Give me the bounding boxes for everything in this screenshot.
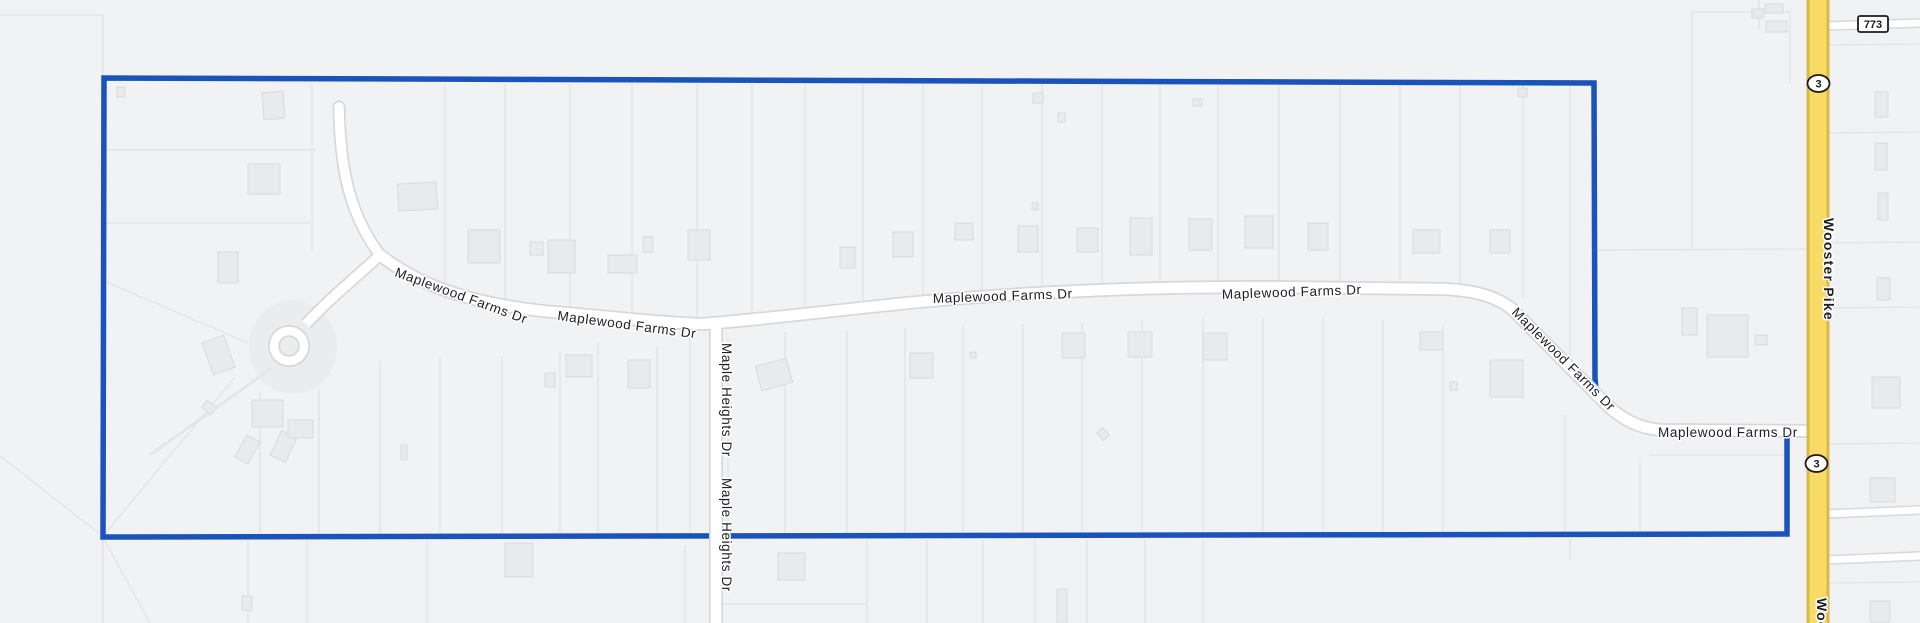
building xyxy=(1707,315,1748,357)
road-label-wooster-pike-1: Wooster Pike xyxy=(1821,218,1837,321)
building xyxy=(1765,4,1783,13)
road-label-maple-heights-2: Maple Heights Dr xyxy=(719,478,734,592)
building xyxy=(970,352,976,358)
building xyxy=(218,252,238,283)
building xyxy=(1490,230,1510,253)
building xyxy=(1766,21,1787,32)
road-label-maple-heights-1: Maple Heights Dr xyxy=(719,343,734,457)
building xyxy=(505,543,533,577)
route-shield-3-north-number: 3 xyxy=(1815,79,1821,91)
building xyxy=(530,242,543,255)
building xyxy=(1130,218,1152,255)
building xyxy=(262,91,285,119)
building xyxy=(1062,333,1085,358)
building xyxy=(1450,382,1457,390)
building xyxy=(1420,332,1443,350)
building xyxy=(1189,219,1212,250)
building xyxy=(1193,99,1202,106)
road-side-east-1-fill xyxy=(1826,510,1920,514)
building xyxy=(1077,228,1098,252)
building xyxy=(1018,226,1038,252)
route-shield-3-north: 3 xyxy=(1808,75,1830,92)
building xyxy=(1875,92,1888,117)
building xyxy=(1413,230,1440,253)
building xyxy=(840,247,855,268)
route-shield-3-south-number: 3 xyxy=(1813,459,1819,471)
building xyxy=(1870,478,1895,502)
building xyxy=(1875,143,1887,170)
building xyxy=(608,255,637,273)
building xyxy=(288,420,313,438)
building xyxy=(1518,88,1527,97)
road-label-maplewood-6: Maplewood Farms Dr xyxy=(1658,425,1798,440)
building xyxy=(910,353,933,378)
building xyxy=(1308,223,1328,250)
map-svg[interactable]: Maplewood Farms Dr Maplewood Farms Dr Ma… xyxy=(0,0,1920,623)
building xyxy=(643,237,653,252)
route-shield-773: 773 xyxy=(1858,16,1888,32)
building xyxy=(401,445,407,460)
building xyxy=(1032,203,1038,210)
building xyxy=(1057,589,1067,623)
building xyxy=(468,230,500,263)
building xyxy=(1203,333,1227,360)
building xyxy=(955,223,973,240)
building xyxy=(1033,93,1043,103)
building xyxy=(1877,278,1890,300)
building xyxy=(1128,332,1152,357)
building xyxy=(242,596,252,610)
route-shield-3-south: 3 xyxy=(1806,455,1828,472)
building xyxy=(1490,360,1523,397)
building xyxy=(252,400,283,427)
building xyxy=(1245,216,1273,248)
building xyxy=(548,240,575,273)
building xyxy=(117,87,125,97)
building xyxy=(1755,335,1767,345)
building xyxy=(1878,193,1888,220)
building xyxy=(1058,113,1065,122)
building xyxy=(893,232,913,257)
building xyxy=(628,360,650,388)
building xyxy=(397,182,437,211)
building xyxy=(778,553,805,580)
map-canvas[interactable]: Maplewood Farms Dr Maplewood Farms Dr Ma… xyxy=(0,0,1920,623)
building xyxy=(248,164,280,194)
building xyxy=(566,355,592,377)
building xyxy=(1752,9,1763,18)
route-shield-773-number: 773 xyxy=(1864,19,1882,31)
road-label-wooster-pike-2: Wooster Pike xyxy=(1814,598,1830,623)
building xyxy=(1870,601,1890,622)
building xyxy=(688,230,710,260)
building xyxy=(1682,308,1697,335)
building xyxy=(1872,377,1900,408)
road-side-east-2-fill xyxy=(1826,556,1920,560)
building xyxy=(545,373,555,387)
